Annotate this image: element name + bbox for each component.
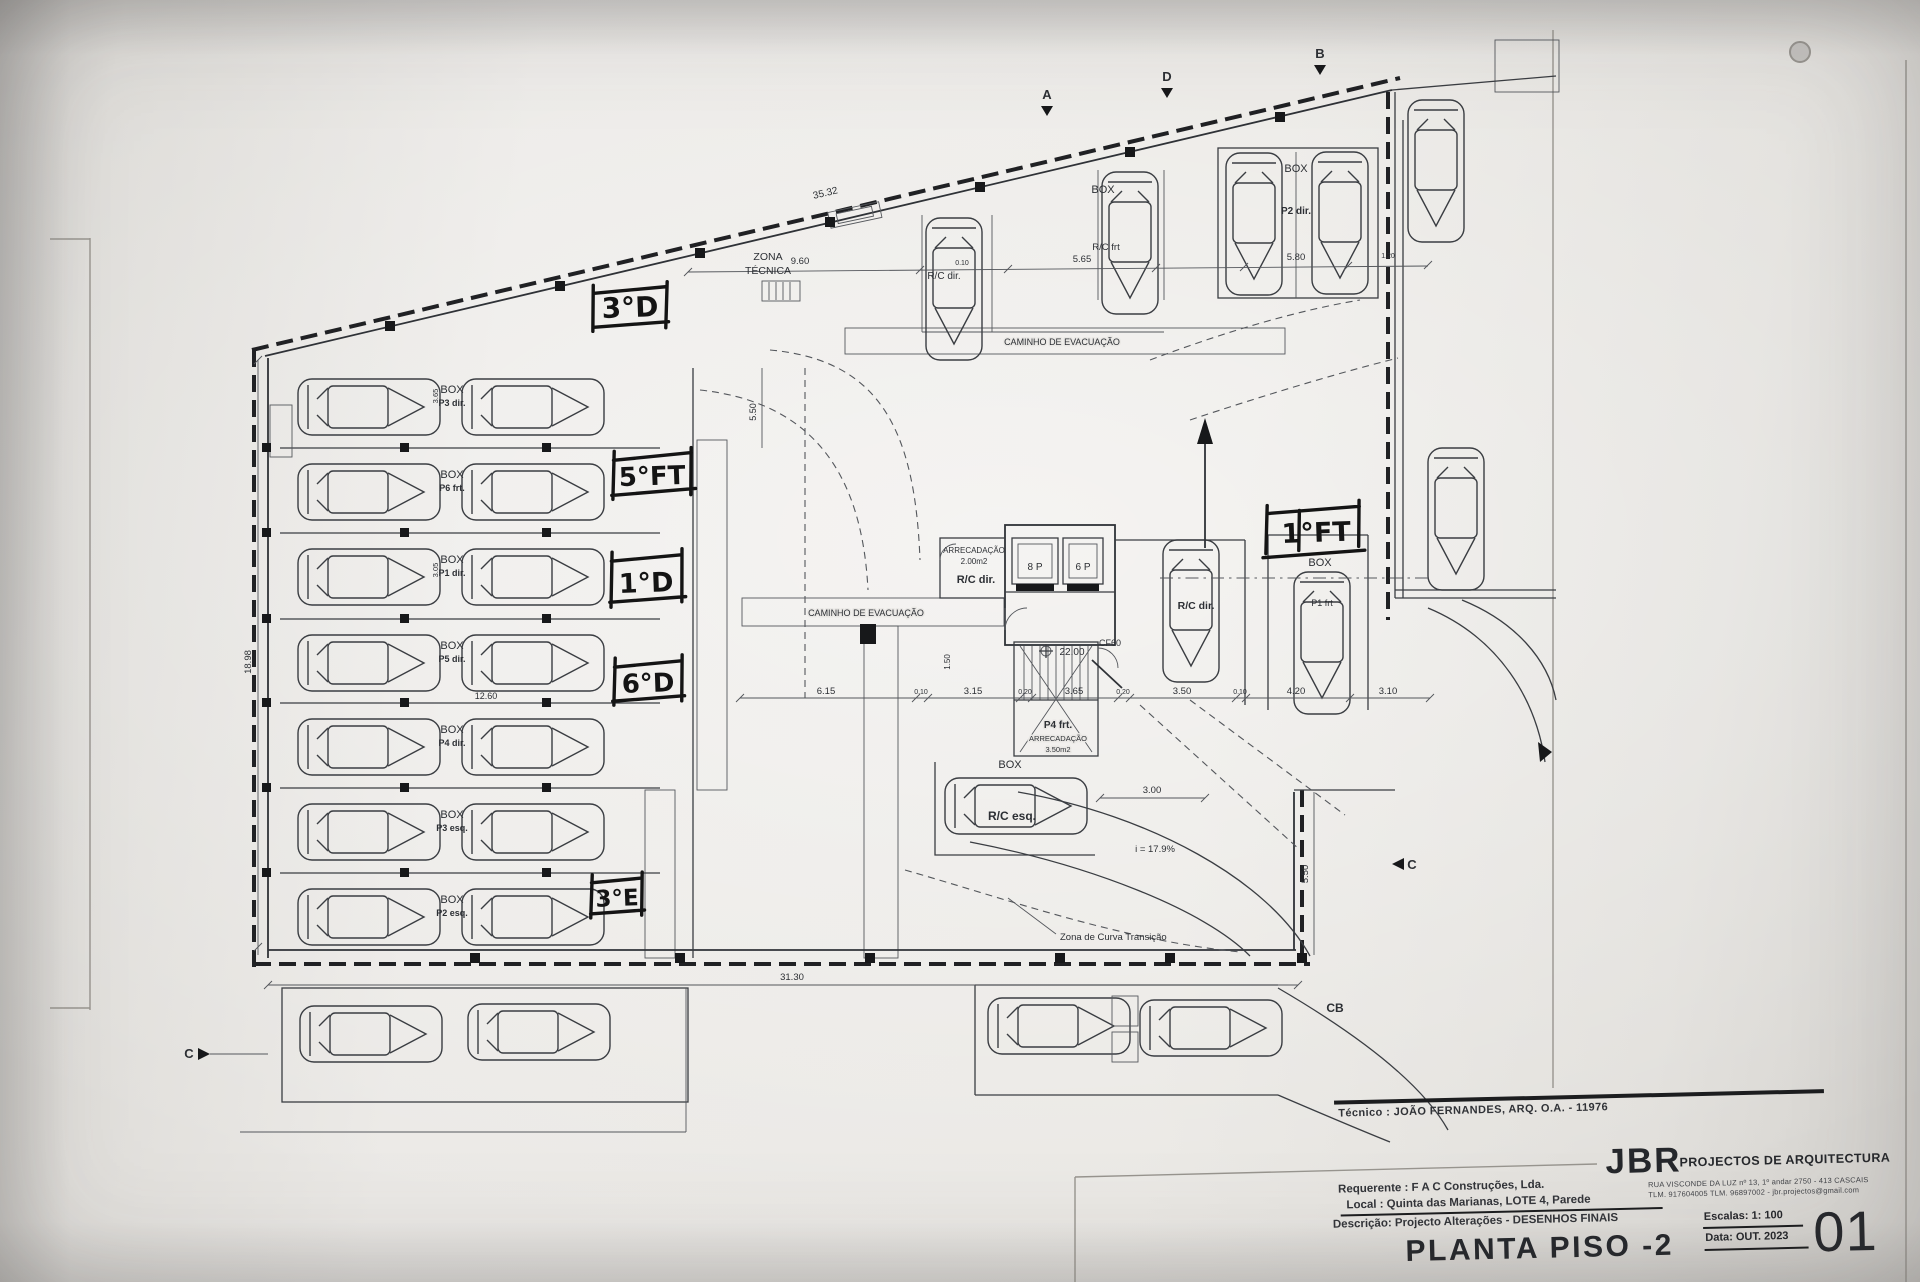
- unit-label: R/C esq.: [988, 809, 1036, 823]
- dimension-lines: [254, 261, 1434, 989]
- evacuation-path-label: CAMINHO DE EVACUAÇÃO: [1004, 337, 1120, 347]
- car-icon: [298, 719, 440, 775]
- svg-text:3°E: 3°E: [595, 885, 639, 912]
- svg-text:3°D: 3°D: [601, 290, 659, 325]
- dim: 0.10: [914, 689, 928, 696]
- stall-dim: 3.65: [431, 389, 440, 404]
- title-block: Técnico : JOÃO FERNANDES, ARQ. O.A. - 11…: [1316, 1075, 1920, 1282]
- date-value: OUT. 2023: [1736, 1230, 1789, 1243]
- requerente-label: Requerente :: [1338, 1182, 1409, 1196]
- car-icon: [1408, 100, 1464, 242]
- dim: 0.10: [955, 260, 969, 267]
- dim: 4.20: [1287, 686, 1306, 697]
- rc-esq-bay: BOX R/C esq.: [935, 759, 1095, 855]
- car-icon: [926, 218, 982, 360]
- car-icon: [1140, 1000, 1282, 1056]
- ramp-annotations: i = 17.9% Zona de Curva Transição: [1008, 844, 1175, 943]
- lift-label: 6 P: [1075, 562, 1090, 573]
- box-label: BOX: [1091, 184, 1115, 196]
- divider-rule: [1703, 1225, 1803, 1229]
- storage-label: ARRECADAÇÃO: [943, 546, 1005, 555]
- dim: 3.10: [1379, 686, 1398, 697]
- stall-label: P4 dir.: [438, 738, 465, 748]
- local-label: Local :: [1346, 1199, 1383, 1212]
- stall-label: P6 frt.: [439, 483, 465, 493]
- box-label: BOX: [1284, 163, 1308, 175]
- hole-punch: [1790, 42, 1810, 62]
- dimension-texts: 35.32 9.60 0.10 5.65 5.80 1.20 18.98 12.…: [243, 185, 1397, 983]
- fire-door-label: CF60: [1099, 638, 1121, 648]
- dim: 9.60: [791, 256, 810, 267]
- requerente-row: Requerente : F A C Construções, Lda.: [1338, 1179, 1544, 1196]
- dim: 0.20: [1018, 689, 1032, 696]
- car-icon: [298, 889, 440, 945]
- svg-text:1°FT: 1°FT: [1281, 517, 1352, 550]
- stall-label: P1 frt: [1311, 598, 1333, 608]
- storage-area: 3.50m2: [1045, 745, 1070, 754]
- scale-value: 1: 100: [1751, 1209, 1782, 1222]
- zona-tecnica-label: TÉCNICA: [745, 264, 791, 277]
- lift-label: 8 P: [1027, 562, 1042, 573]
- right-parking: [1115, 100, 1484, 714]
- dim-bottom-total: 31.30: [780, 972, 804, 983]
- car-icon: [462, 635, 604, 691]
- section-marker: C: [184, 1046, 194, 1061]
- stall-label: P2 dir.: [1281, 206, 1311, 217]
- dim-ramp-width: 5.50: [748, 403, 758, 421]
- dim: 5.65: [1073, 254, 1092, 265]
- unit-label: R/C dir.: [957, 574, 996, 586]
- corner-detail: [1495, 40, 1559, 92]
- handwritten-annotations: 3°D 5°FT 1°D 6°D 3°E 1°FT: [589, 282, 1365, 918]
- date-row: Data: OUT. 2023: [1705, 1230, 1788, 1244]
- handwritten-6d: 6°D: [611, 655, 685, 705]
- car-icon: [1226, 153, 1282, 295]
- unit-label: R/C dir.: [927, 271, 960, 282]
- car-icon: [1312, 152, 1368, 294]
- local-value: Quinta das Marianas, LOTE 4, Parede: [1387, 1194, 1591, 1211]
- firm-tagline: PROJECTOS DE ARQUITECTURA: [1679, 1151, 1890, 1170]
- descricao-value: Projecto Alterações - DESENHOS FINAIS: [1395, 1212, 1618, 1229]
- storage-label: ARRECADAÇÃO: [1029, 734, 1087, 743]
- zone-labels: ZONA TÉCNICA CAMINHO DE EVACUAÇÃO CAMINH…: [745, 251, 1120, 618]
- section-marker: D: [1162, 69, 1171, 84]
- car-icon: [462, 549, 604, 605]
- hatched-bands: [645, 328, 1285, 958]
- right-parking-labels: R/C dir. BOX P1 frt: [1178, 557, 1334, 612]
- car-icon: [298, 804, 440, 860]
- stall-label: P5 dir.: [438, 654, 465, 664]
- box-label: BOX: [440, 640, 464, 652]
- date-label: Data:: [1705, 1231, 1733, 1244]
- car-icon: [462, 464, 604, 520]
- car-icon: [462, 804, 604, 860]
- car-icon: [468, 1004, 610, 1060]
- stall-label: P1 dir.: [438, 568, 465, 578]
- box-label: BOX: [440, 469, 464, 481]
- firm-logo: JBR: [1605, 1141, 1682, 1183]
- car-icon: [462, 719, 604, 775]
- curve-zone-label: Zona de Curva Transição: [1060, 932, 1167, 943]
- car-icon: [298, 635, 440, 691]
- requerente-value: F A C Construções, Lda.: [1411, 1179, 1544, 1194]
- car-icon: [1428, 448, 1484, 590]
- car-icon: [462, 379, 604, 435]
- sheet-number: 01: [1812, 1198, 1878, 1264]
- dim-row-width: 12.60: [475, 691, 498, 701]
- box-label: BOX: [440, 554, 464, 566]
- box-label: BOX: [440, 384, 464, 396]
- dim: 6.15: [817, 686, 836, 697]
- slope-label: i = 17.9%: [1135, 844, 1175, 855]
- stall-label: P3 dir.: [438, 398, 465, 408]
- scale-label: Escalas:: [1704, 1210, 1749, 1223]
- descricao-label: Descrição:: [1333, 1217, 1392, 1230]
- dim-top-total: 35.32: [812, 185, 839, 201]
- top-parking-labels: R/C dir. BOX R/C frt BOX P2 dir.: [927, 163, 1311, 282]
- stall-dim: 3.05: [431, 563, 440, 578]
- box-label: BOX: [998, 759, 1022, 771]
- dim-left-total: 18.98: [243, 650, 254, 674]
- level-value: 22.00: [1059, 647, 1084, 658]
- box-label: BOX: [1308, 557, 1332, 569]
- scale-row: Escalas: 1: 100: [1704, 1209, 1783, 1223]
- dim: 3.65: [1065, 686, 1084, 697]
- handwritten-3d: 3°D: [591, 282, 669, 332]
- dim: 1.50: [943, 654, 952, 670]
- svg-text:6°D: 6°D: [621, 668, 675, 700]
- car-icon: [298, 549, 440, 605]
- tecnico-line: Técnico : JOÃO FERNANDES, ARQ. O.A. - 11…: [1338, 1101, 1608, 1119]
- stall-label: P3 esq.: [436, 823, 468, 833]
- drawing-title: PLANTA PISO -2: [1405, 1229, 1674, 1269]
- handwritten-3e: 3°E: [589, 872, 645, 918]
- drive-path-curves: [700, 300, 1556, 956]
- stall-label: P2 esq.: [436, 908, 468, 918]
- dim: 3.15: [964, 686, 983, 697]
- storage-area: 2.00m2: [961, 557, 988, 566]
- car-icon: [300, 1006, 442, 1062]
- evacuation-path-label: CAMINHO DE EVACUAÇÃO: [808, 608, 924, 618]
- divider-rule: [1705, 1247, 1809, 1251]
- photographed-floor-plan-sheet: BOX P3 dir. BOX P6 frt. BOX P1 dir. BOX …: [0, 0, 1920, 1282]
- svg-text:1°D: 1°D: [618, 567, 674, 600]
- car-icon: [462, 889, 604, 945]
- box-label: BOX: [440, 894, 464, 906]
- dim: 5.80: [1287, 252, 1306, 263]
- handwritten-5ft: 5°FT: [610, 448, 696, 500]
- dim: 3.00: [1143, 785, 1162, 796]
- section-marker: C: [1407, 857, 1417, 872]
- box-label: BOX: [440, 809, 464, 821]
- zona-tecnica-label: ZONA: [753, 251, 782, 263]
- section-marker: A: [1042, 87, 1052, 102]
- dim: 0.20: [1116, 689, 1130, 696]
- dim: 0.10: [1233, 689, 1247, 696]
- car-icon: [988, 998, 1130, 1054]
- unit-label: R/C dir.: [1178, 600, 1215, 612]
- stall-label: P4 frt.: [1044, 720, 1073, 731]
- handwritten-1ft: 1°FT: [1261, 500, 1365, 558]
- section-marker: B: [1315, 46, 1324, 61]
- car-icon: [298, 464, 440, 520]
- dim: 1.20: [1381, 253, 1395, 260]
- box-label: BOX: [440, 724, 464, 736]
- dim: 3.50: [1173, 686, 1192, 697]
- car-icon: [945, 778, 1087, 834]
- bottom-parking: [240, 985, 1448, 1142]
- car-icon: [298, 379, 440, 435]
- left-parking-block: [270, 368, 693, 958]
- handwritten-1d: 1°D: [608, 549, 686, 608]
- svg-text:5°FT: 5°FT: [618, 461, 686, 493]
- dim: 5.50: [1300, 865, 1311, 884]
- unit-label: R/C frt: [1092, 242, 1120, 253]
- section-marker: CB: [1326, 1001, 1344, 1015]
